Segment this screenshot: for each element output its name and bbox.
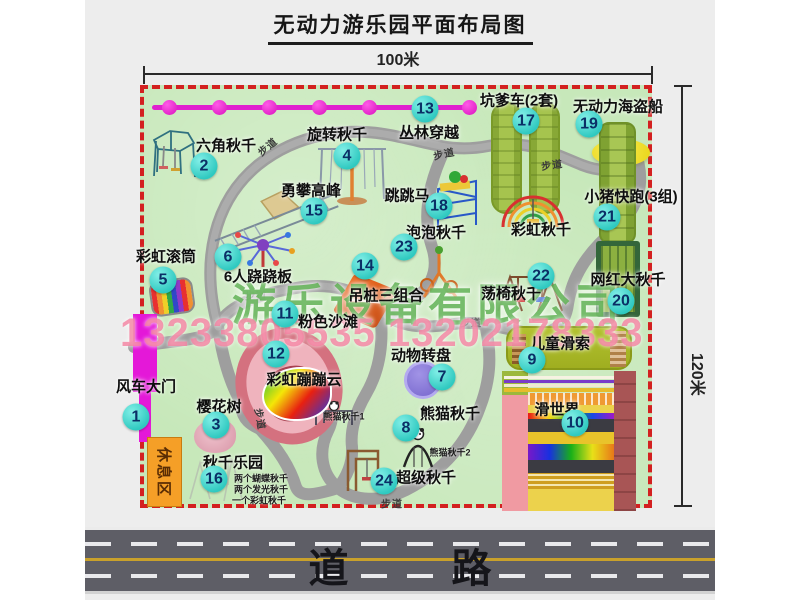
road: 道 路 [85,527,715,594]
poi-label-13: 丛林穿越 [399,122,459,143]
poi-marker-16: 16 [201,466,228,493]
chain-dot [462,100,477,115]
walkway-label: 步道 [245,288,267,303]
content-area: 无动力游乐园平面布局图 100米 120米 [85,0,715,600]
poi-marker-12: 12 [263,341,290,368]
poi-label-8: 熊猫秋千 [420,403,480,424]
poi-marker-11: 11 [272,301,299,328]
rest-area-label: 休息区 [154,446,175,497]
poi-label-24: 超级秋千 [396,467,456,488]
poi-label-20: 网红大秋千 [590,269,665,290]
poi-marker-20: 20 [608,288,635,315]
six-person-seesaw-structure [230,225,296,271]
poi-sublabel: 熊猫秋千1 [323,410,364,423]
poi-label-14: 吊桩三组合 [348,285,423,306]
poi-label-18: 跳跳马 [384,185,429,206]
walkway-label: 步道 [460,315,482,330]
height-dimension-line [681,85,683,507]
hexagon-swing-structure [144,124,200,182]
poi-marker-17: 17 [513,108,540,135]
poi-marker-10: 10 [562,410,589,437]
slide-world-structure [502,371,636,511]
chain-dot [162,100,177,115]
chain-dot [212,100,227,115]
poi-label-7: 动物转盘 [391,345,451,366]
height-dimension: 120米 [673,85,703,507]
poi-marker-21: 21 [594,204,621,231]
rest-area-box: 休息区 [147,437,182,507]
poi-label-12: 彩虹蹦蹦云 [266,369,341,390]
poi-label-11: 粉色沙滩 [298,311,358,332]
width-dimension-line [143,73,653,75]
poi-marker-1: 1 [123,404,150,431]
slide-world-right-band [614,371,636,511]
walkway-label: 步道 [540,155,564,173]
poi-marker-23: 23 [391,234,418,261]
poi-marker-8: 8 [393,415,420,442]
poi-marker-3: 3 [203,412,230,439]
poi-label-4: 旋转秋千 [307,124,367,145]
poi-marker-4: 4 [334,143,361,170]
poi-marker-9: 9 [519,347,546,374]
poi-label-x: 彩虹秋千 [511,219,571,240]
poi-marker-5: 5 [150,267,177,294]
zipline-platform-right [610,331,626,367]
slide-world-pink-band [502,395,528,511]
poi-marker-2: 2 [191,153,218,180]
poi-marker-14: 14 [352,253,379,280]
poi-marker-15: 15 [301,198,328,225]
width-dimension-label: 100米 [143,46,653,70]
poi-marker-24: 24 [371,468,398,495]
poi-label-21: 小猪快跑(3组) [584,186,677,207]
poi-sublabel: 熊猫秋千2 [429,446,470,459]
poi-sublabel: 一个彩虹秋千 [232,494,286,507]
width-dimension: 100米 [143,46,653,75]
chain-dot [262,100,277,115]
park-map: 休息区 [140,85,652,508]
poi-label-17: 坑爹车(2套) [480,90,558,111]
page-title: 无动力游乐园平面布局图 [85,9,715,45]
poi-label-5: 彩虹滚筒 [136,246,196,267]
poi-marker-13: 13 [412,96,439,123]
poi-marker-22: 22 [528,263,555,290]
poi-marker-19: 19 [576,111,603,138]
poi-label-1: 风车大门 [116,376,176,397]
chain-dot [312,100,327,115]
chain-dot [362,100,377,115]
poi-marker-7: 7 [429,364,456,391]
poi-marker-6: 6 [215,244,242,271]
walkway-label: 步道 [381,496,403,511]
poi-marker-18: 18 [426,193,453,220]
height-dimension-label: 120米 [687,353,711,396]
page-title-text: 无动力游乐园平面布局图 [268,9,533,45]
road-label: 道 路 [85,536,715,594]
screenshot-root: 无动力游乐园平面布局图 100米 120米 [0,0,800,600]
